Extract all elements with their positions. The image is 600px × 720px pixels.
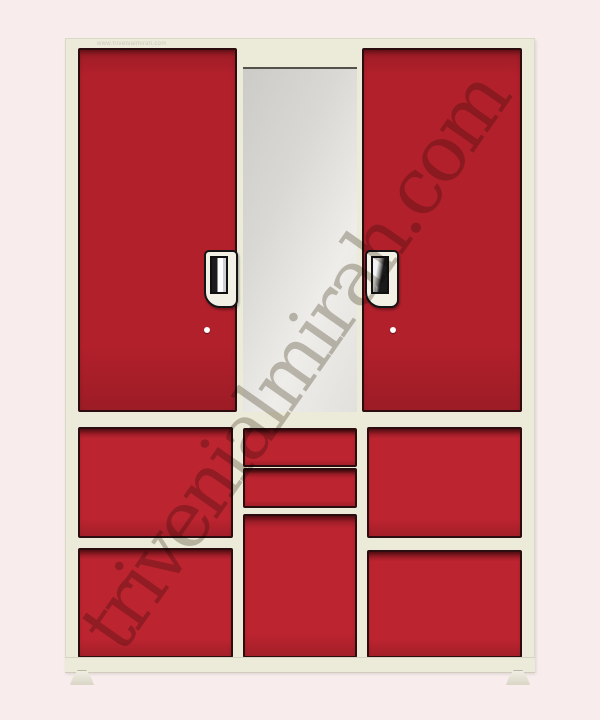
center-lower-panel [243, 514, 357, 658]
right-handle-slot [371, 256, 389, 294]
top-watermark-url: www.trivenialmirah.com [97, 41, 167, 47]
right-door-handle [365, 250, 399, 308]
center-drawer-2 [243, 468, 357, 508]
left-lower-panel [78, 548, 233, 658]
left-door-lock [204, 327, 210, 333]
left-door [78, 48, 237, 412]
dressing-mirror [243, 67, 357, 412]
almirah-cabinet: www.trivenialmirah.com [65, 38, 535, 672]
left-upper-panel [78, 427, 233, 538]
base-rail [65, 657, 535, 672]
mirror-door-top-rail [243, 48, 357, 67]
left-foot [70, 670, 94, 685]
product-photo: www.trivenialmirah.com [0, 0, 600, 720]
center-drawer-1 [243, 428, 357, 467]
right-foot [506, 670, 530, 685]
right-door-lock [390, 327, 396, 333]
right-door [362, 48, 522, 412]
left-handle-slot [210, 256, 228, 294]
right-lower-panel [367, 550, 522, 658]
right-upper-panel [367, 427, 522, 538]
left-door-handle [204, 250, 238, 308]
